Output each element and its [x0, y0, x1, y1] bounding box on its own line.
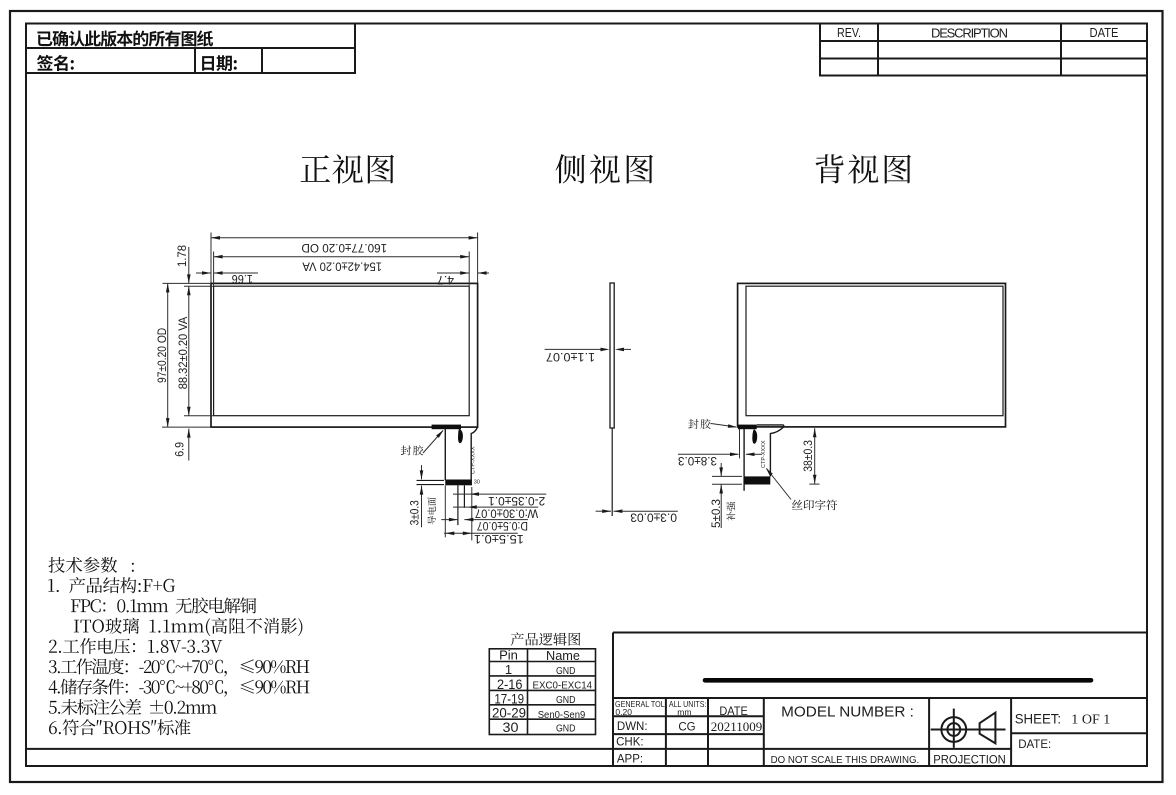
svg-text:CHK:: CHK: [616, 737, 643, 749]
svg-text:MODEL NUMBER :: MODEL NUMBER : [781, 705, 914, 721]
svg-text:5±0.3: 5±0.3 [711, 499, 723, 528]
svg-text:30: 30 [503, 720, 519, 735]
svg-text:2-16: 2-16 [497, 677, 523, 692]
svg-text:APP:: APP: [617, 754, 643, 766]
svg-text:REV.: REV. [837, 25, 861, 40]
svg-text:88.32±0.20 VA: 88.32±0.20 VA [178, 316, 190, 389]
svg-text:CG: CG [678, 722, 695, 734]
svg-text:DWN:: DWN: [617, 721, 648, 733]
svg-text:0.20: 0.20 [615, 707, 632, 717]
svg-text:1 OF 1: 1 OF 1 [1071, 712, 1110, 727]
svg-text:20211009: 20211009 [711, 719, 763, 734]
svg-text:CTP-XXXX: CTP-XXXX [471, 446, 477, 474]
svg-text:1: 1 [505, 662, 512, 677]
svg-text:17-19: 17-19 [494, 691, 524, 706]
svg-text:DESCRIPTION: DESCRIPTION [931, 26, 1008, 41]
svg-text:DATE: DATE [719, 704, 747, 718]
svg-text:D:0.5±0.07: D:0.5±0.07 [477, 519, 528, 531]
svg-text:154.42±0.20 VA: 154.42±0.20 VA [302, 260, 382, 272]
svg-text:4.7: 4.7 [437, 273, 454, 285]
svg-text:2-0.35±0.1: 2-0.35±0.1 [488, 494, 545, 506]
svg-text:DATE: DATE [1090, 25, 1119, 40]
svg-text:EXC0-EXC14: EXC0-EXC14 [533, 679, 593, 691]
svg-text:20-29: 20-29 [492, 706, 526, 721]
svg-text:Name: Name [546, 648, 580, 663]
svg-text:97±0.20 OD: 97±0.20 OD [157, 328, 169, 383]
svg-text:1.1±0.07: 1.1±0.07 [546, 350, 595, 362]
svg-text:GND: GND [556, 722, 576, 734]
svg-text:mm: mm [677, 707, 691, 717]
svg-text:15.5±0.1: 15.5±0.1 [474, 532, 524, 544]
svg-text:1.78: 1.78 [177, 245, 189, 267]
svg-text:30: 30 [474, 479, 480, 485]
svg-text:6.9: 6.9 [175, 442, 187, 457]
svg-text:DATE:: DATE: [1018, 739, 1051, 751]
svg-text:38±0.3: 38±0.3 [803, 440, 815, 472]
svg-text:GND: GND [556, 665, 576, 677]
svg-text:GND: GND [556, 694, 576, 706]
svg-text:W:0.30±0.07: W:0.30±0.07 [475, 507, 538, 519]
svg-text:Pin: Pin [499, 648, 518, 663]
svg-text:160.77±0.20 OD: 160.77±0.20 OD [301, 241, 387, 253]
svg-text:Sen0-Sen9: Sen0-Sen9 [538, 709, 586, 721]
svg-text:0.3±0.03: 0.3±0.03 [630, 510, 677, 522]
svg-text:DO NOT SCALE THIS DRAWING.: DO NOT SCALE THIS DRAWING. [771, 755, 920, 766]
svg-text:3±0.3: 3±0.3 [409, 500, 421, 525]
svg-text:1.66: 1.66 [232, 272, 253, 284]
svg-text:3.8±0.3: 3.8±0.3 [678, 454, 717, 466]
svg-text:SHEET:: SHEET: [1015, 711, 1061, 727]
svg-text:PROJECTION: PROJECTION [933, 755, 1006, 767]
